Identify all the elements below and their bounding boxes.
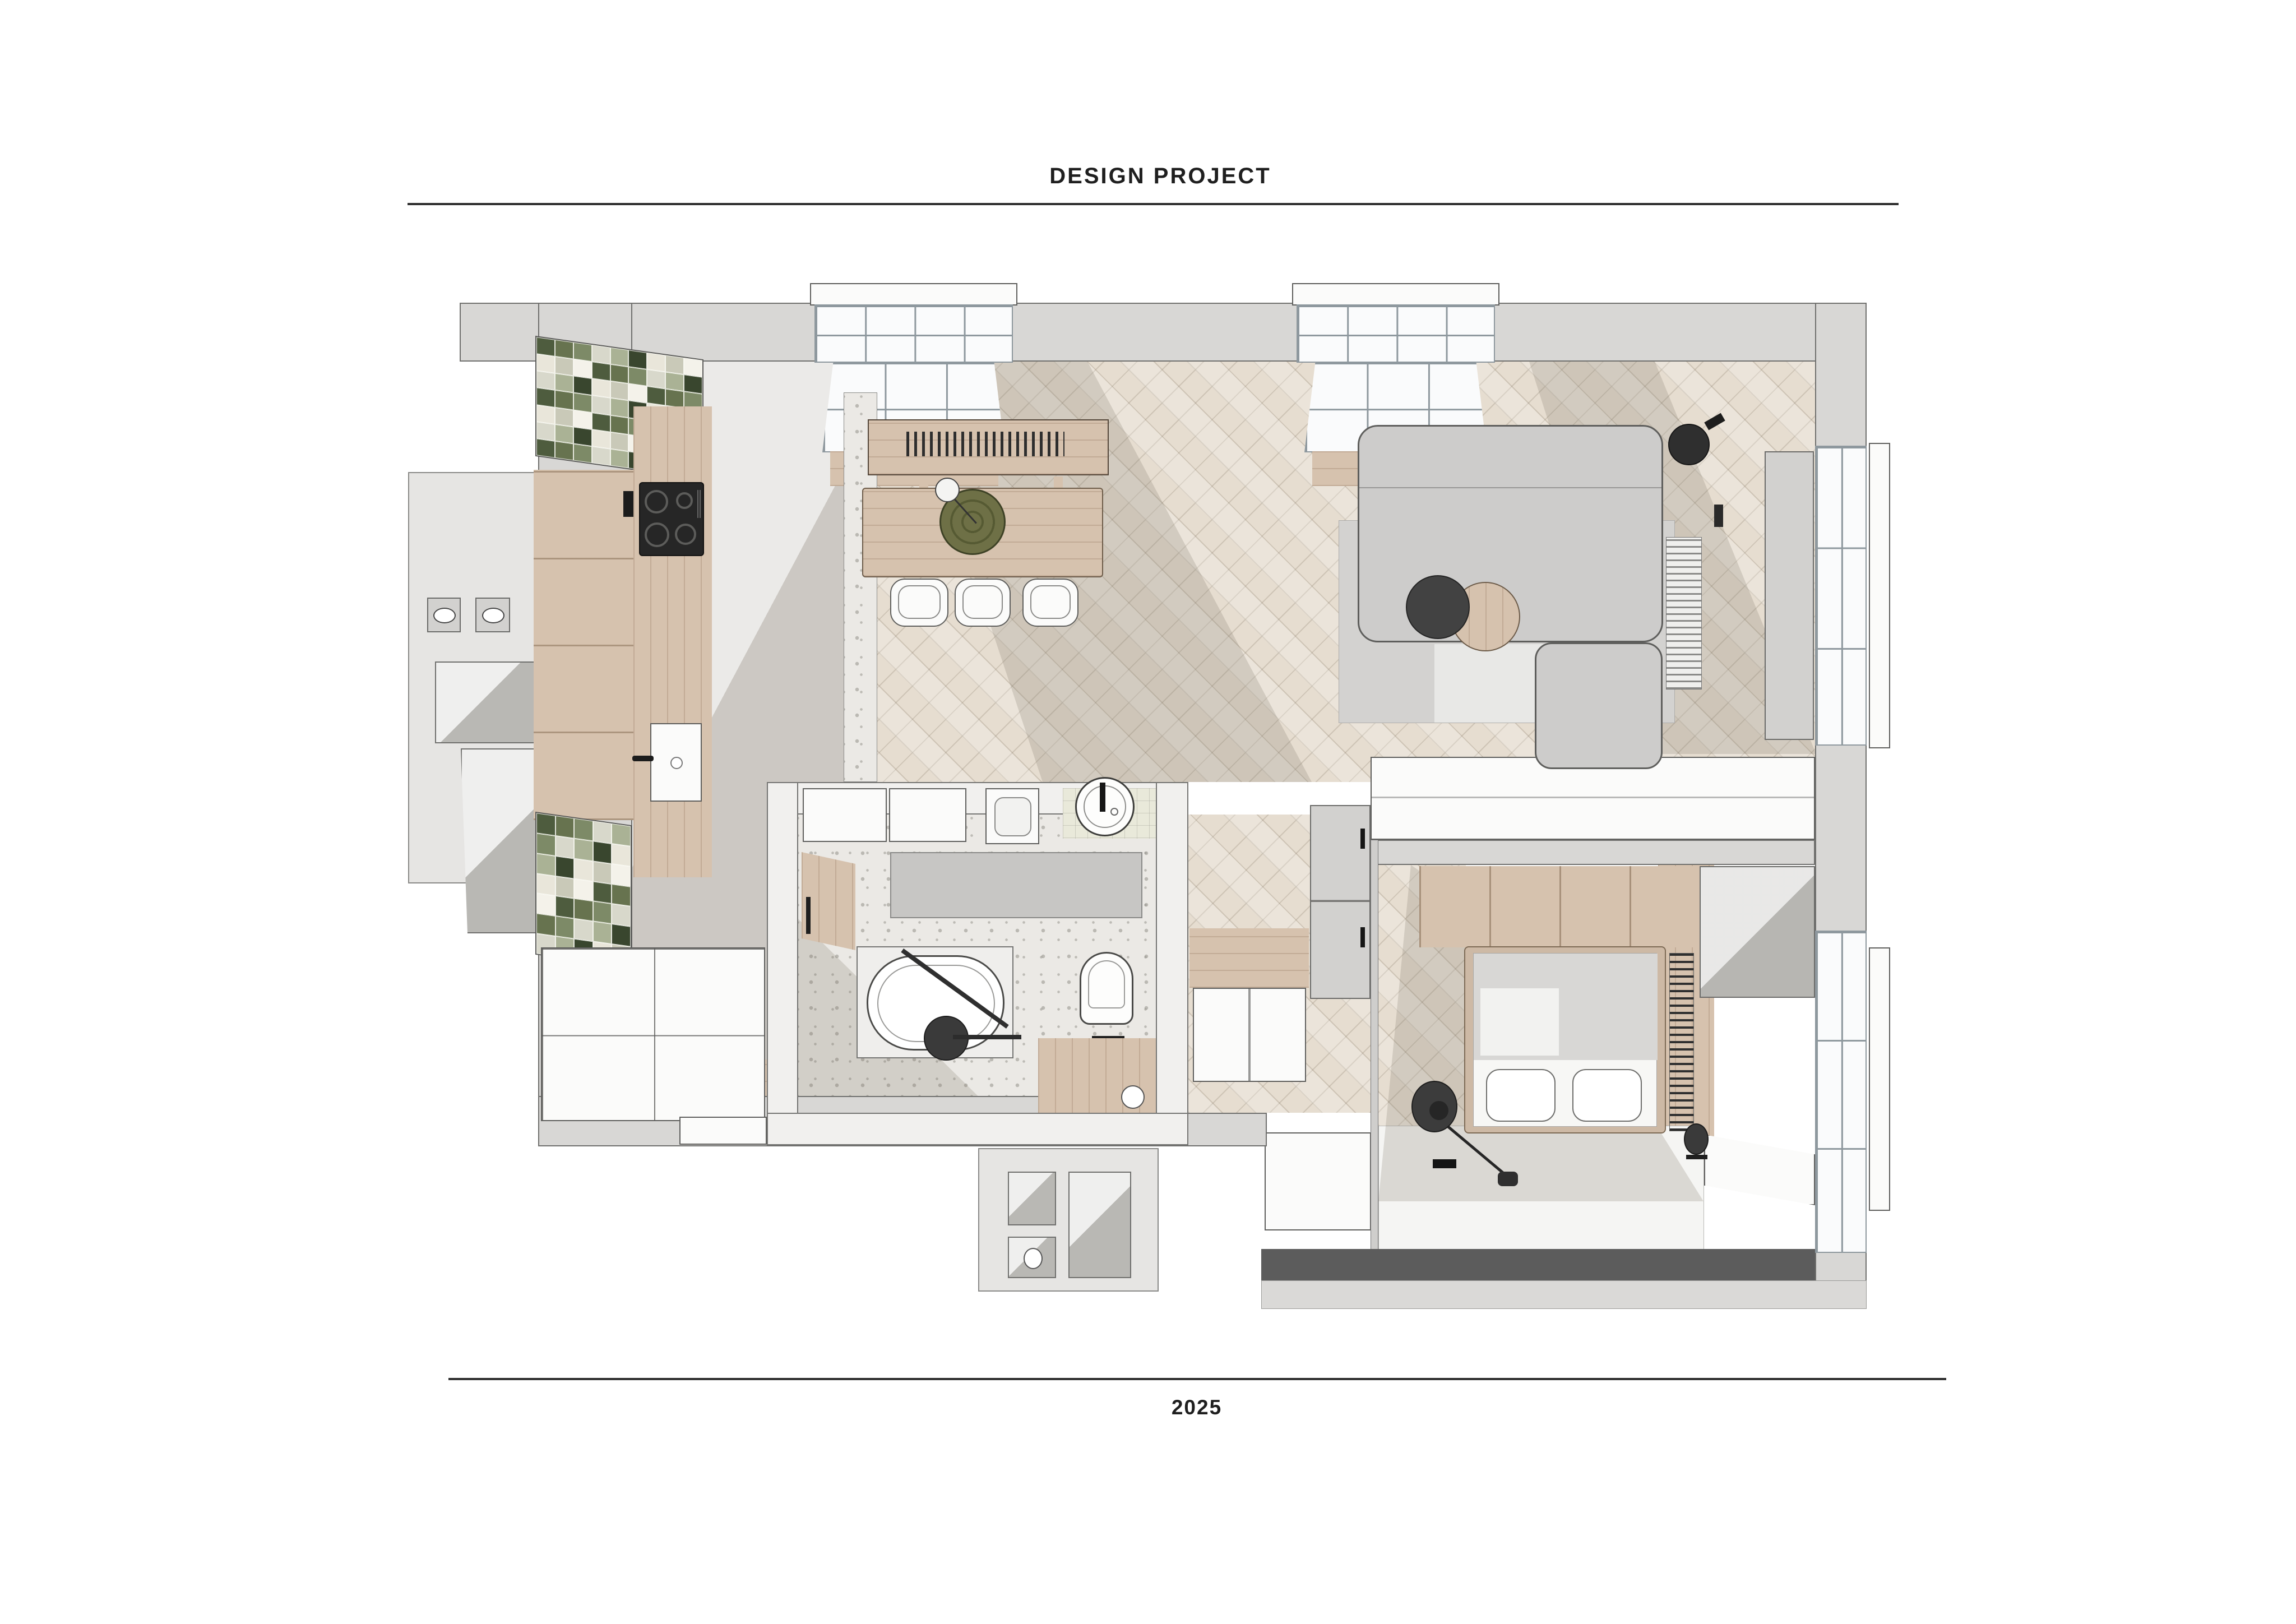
floor-lamp-base [1498,1172,1518,1186]
coffee-table-dark [1406,575,1470,639]
mosaic-tile [593,901,612,924]
bath-storage-door [889,788,966,842]
kitchen-upper-cabinets [534,470,633,820]
light-switch [1714,505,1723,527]
toilet [1080,952,1133,1025]
mosaic-tile [536,833,556,856]
kitchen-mosaic-backsplash-lower [535,812,632,968]
bathroom-wall-bottom [767,1113,1188,1145]
ceiling-spotlight [475,598,510,632]
mosaic-tile [555,407,573,427]
mosaic-tile [610,398,629,418]
mosaic-tile [536,388,555,408]
pillow [1572,1069,1642,1122]
bedroom-tall-cabinet [1700,866,1815,998]
dining-chair [1022,579,1078,627]
mosaic-tile [612,823,631,846]
living-radiator [1666,537,1702,690]
remote-control [1433,1159,1456,1168]
toilet-seat-line [1088,960,1125,1008]
wall-top [460,303,1867,362]
mosaic-tile [555,441,573,461]
floor-plan [0,0,2296,1624]
burner [675,524,696,545]
mosaic-tile [556,876,575,899]
mosaic-tile [536,371,555,390]
mosaic-tile [556,896,575,919]
mosaic-tile [610,449,629,469]
mosaic-tile [612,924,631,947]
sofa-chaise [1535,642,1663,769]
mosaic-tile [555,373,573,393]
washing-machine [985,788,1039,844]
sofa-backrest-seam [1359,487,1661,488]
mosaic-tile [592,429,610,449]
mosaic-tile [593,841,612,864]
mosaic-tile [612,864,631,887]
floor-lamp-shade [1411,1081,1457,1132]
mosaic-tile [555,340,573,359]
balcony-strip-light [1261,1280,1867,1309]
pendant-lamp [935,478,960,502]
chair-seat-line [898,585,941,619]
mosaic-tile [647,353,665,372]
hall-bench-drawers [1193,988,1306,1082]
toilet-brush-holder [1121,1085,1145,1109]
towel-bar [806,897,811,934]
bathroom-wall-right [1156,782,1188,1145]
washer-lid [994,797,1031,836]
mosaic-tile [573,427,592,446]
bedroom-floor-radiator-grille [1669,953,1694,1131]
bay-outer-frame [1292,283,1499,306]
mosaic-tile [536,894,556,917]
burner [645,522,669,547]
folded-blanket [1480,988,1559,1056]
mosaic-tile [610,432,629,451]
mosaic-tile [574,878,593,901]
mosaic-tile [536,913,556,936]
bay-outer-frame [810,283,1017,306]
mosaic-tile [555,390,573,410]
speaker [1684,1123,1709,1155]
burner [676,492,693,509]
mosaic-tile [684,358,702,377]
mosaic-tile [647,369,665,389]
bedroom-low-cabinet [1265,1132,1371,1230]
mosaic-tile [536,873,556,896]
hall-bench-top [1189,928,1309,988]
chair-seat-line [962,585,1003,619]
dining-chair [890,579,948,627]
spotlight-bulb [482,608,504,623]
mosaic-tile [536,813,556,836]
mosaic-tile [556,836,575,859]
floor-lamp-hub [1429,1101,1448,1120]
mosaic-tile [573,342,592,362]
kitchen-outlet [623,491,633,517]
mosaic-tile [592,345,610,364]
mosaic-tile [573,393,592,413]
mosaic-tile [573,359,592,379]
window-outer-leaf [1869,947,1890,1211]
mosaic-tile [573,443,592,463]
hall-bedroom-partition [1371,840,1378,1250]
bathroom-wall-left [767,782,798,1145]
mosaic-tile [536,853,556,876]
mosaic-tile [574,818,593,841]
tv-console-divider [1371,757,1815,840]
dining-chair [955,579,1011,627]
shower-arm [953,1035,1021,1039]
mosaic-tile [592,362,610,381]
mosaic-tile [555,357,573,376]
spotlight-bulb [433,608,456,623]
bed-headboard-cabinets [1419,866,1700,947]
mosaic-tile [612,844,631,867]
mosaic-tile [593,922,612,945]
mosaic-tile [536,422,555,441]
kitchen-tall-cabinets [541,947,765,1121]
mosaic-tile [628,350,647,369]
wall-hall-bottom [1177,1113,1267,1146]
chair-seat-line [1030,585,1071,619]
dining-sideboard [868,419,1109,475]
mosaic-tile [610,381,629,401]
mosaic-tile [536,438,555,458]
wardrobe-handle [1360,829,1365,849]
mosaic-tile [665,389,684,409]
bed [1464,946,1666,1133]
mosaic-tile [610,415,629,434]
porch-pipe [1024,1248,1043,1269]
balcony-strip-dark [1261,1249,1815,1280]
mosaic-tile [612,884,631,907]
mosaic-tile [628,367,647,386]
porch-niche-left [1008,1172,1056,1225]
bay-glass-top [1297,304,1495,363]
kitchen-sink [650,723,702,802]
mosaic-tile [592,395,610,415]
bedroom-wall-top [1371,840,1815,865]
speaker-base [1686,1155,1707,1159]
burner [645,490,668,513]
mosaic-tile [556,856,575,879]
window-outer-leaf [1869,443,1890,748]
mosaic-tile [610,348,629,367]
mosaic-tile [592,446,610,466]
mosaic-tile [573,376,592,396]
sideboard-vent-slats [906,432,1064,456]
hall-wardrobe [1310,805,1371,999]
mattress [1473,953,1657,1127]
mosaic-tile [612,904,631,927]
mosaic-tile [665,372,684,392]
porch-niche-bottom [1008,1237,1056,1278]
basin-faucet [1100,783,1105,812]
sink-drain [670,757,683,769]
mosaic-tile [628,384,647,404]
mosaic-tile [574,858,593,881]
bath-storage-door [803,788,887,842]
mosaic-tile [593,861,612,884]
bay-glass-top [814,304,1013,363]
cooktop [639,482,704,556]
mosaic-tile [610,364,629,384]
wall-lamp-living [1668,424,1710,465]
mosaic-tile [574,919,593,942]
pillow [1486,1069,1556,1122]
bedroom-window-sill [1704,1135,1815,1205]
presentation-sheet: DESIGN PROJECT 2025 [0,0,2296,1624]
mosaic-tile [573,410,592,429]
wardrobe-handle [1360,927,1365,947]
window-living-right [1815,446,1867,746]
mosaic-tile [684,374,702,394]
mosaic-tile [556,816,575,839]
mosaic-tile [593,881,612,904]
mosaic-tile [574,899,593,922]
mosaic-tile [574,838,593,861]
cooktop-controls [697,490,702,518]
porch-niche-right [1068,1172,1131,1278]
mosaic-tile [593,821,612,844]
window-bedroom-right [1815,931,1867,1253]
mosaic-tile [647,386,665,406]
bath-counter [890,852,1142,918]
kitchen-counter-run [633,406,712,877]
ceiling-spotlight [427,598,461,632]
mosaic-tile [555,424,573,444]
entry-door [679,1117,767,1145]
mosaic-tile [536,337,555,357]
mosaic-tile [536,354,555,373]
mosaic-tile [556,916,575,939]
mosaic-tile [536,405,555,424]
bedroom-rug [1378,1126,1704,1250]
mosaic-tile [592,413,610,432]
mosaic-tile [665,355,684,375]
mosaic-tile [592,378,610,398]
basin-drain [1110,808,1118,816]
window-shutter-panel [1765,451,1814,740]
exterior-niche-small [435,661,545,743]
kitchen-faucet [632,756,654,761]
